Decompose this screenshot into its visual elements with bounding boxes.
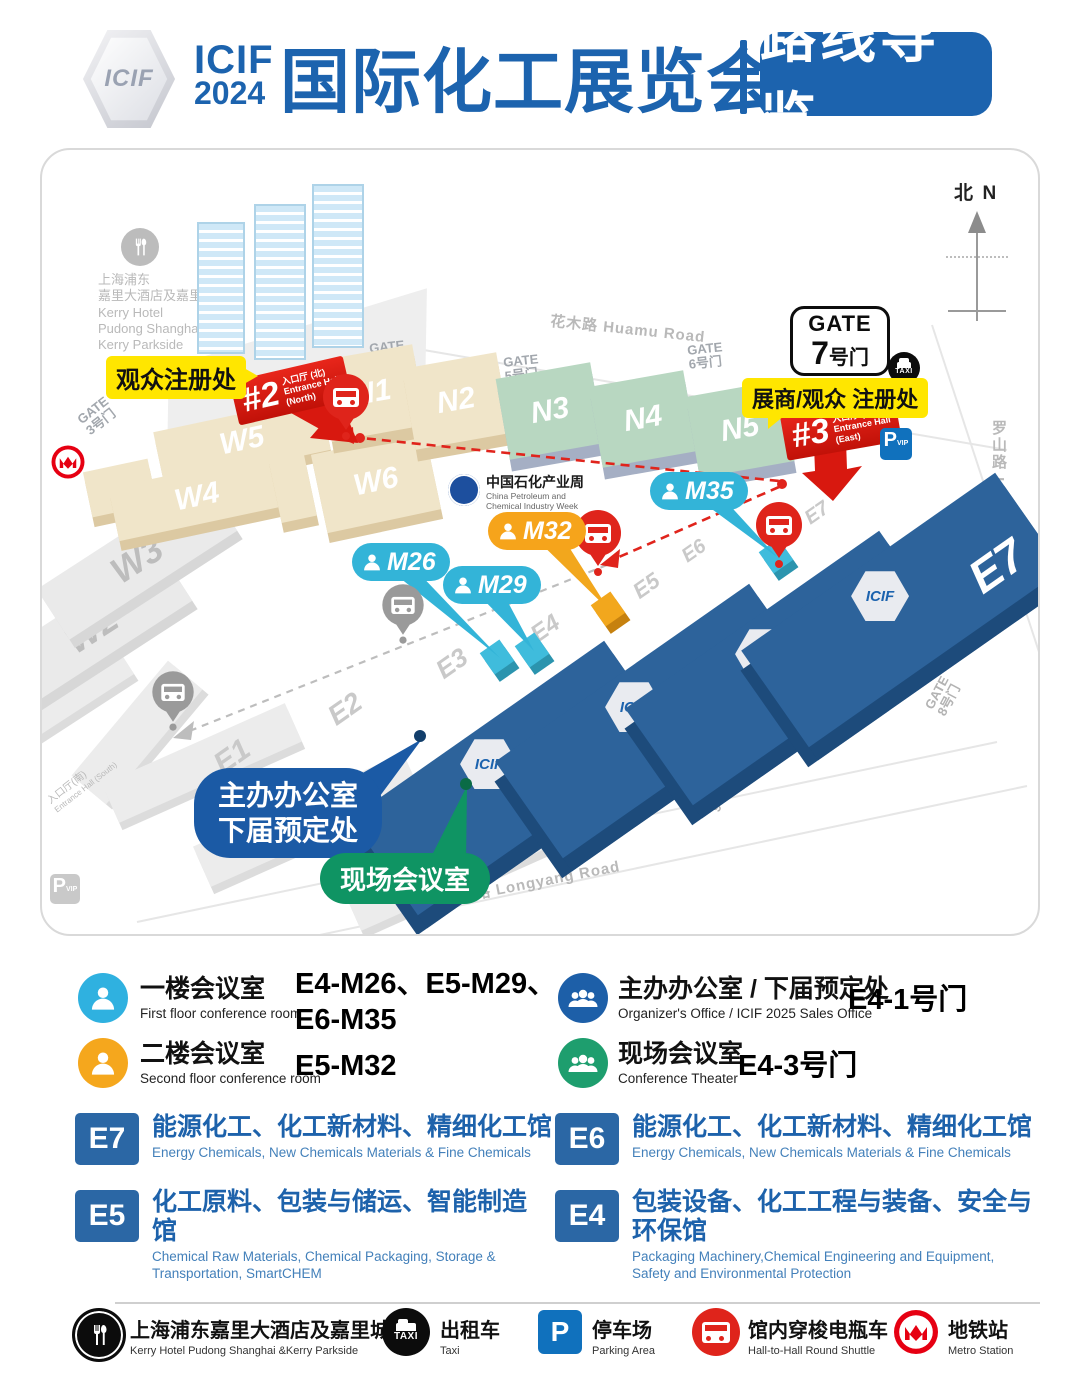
shuttle-stop-icon [756, 502, 802, 568]
legend-first-floor: 一楼会议室 First floor conference room [140, 976, 301, 1021]
second-floor-room-icon [78, 1038, 128, 1088]
footer-parking: 停车场 Parking Area [592, 1314, 655, 1357]
hall-code-e6: E6 [555, 1113, 619, 1165]
hall-info-e5: 化工原料、包装与储运、智能制造馆 Chemical Raw Materials,… [152, 1188, 532, 1283]
restaurant-icon [121, 228, 159, 266]
shuttle-stop-icon-gray [152, 671, 193, 730]
person-icon [498, 521, 518, 541]
conference-theater-icon [558, 1038, 608, 1088]
hall-code-e7: E7 [75, 1113, 139, 1165]
parking-vip-icon-gray: PVIP [50, 874, 80, 904]
page-title: 国际化工展览会 [280, 26, 777, 127]
legend-conference: 现场会议室 Conference Theater [618, 1041, 743, 1086]
first-floor-room-icon [78, 973, 128, 1023]
route-guide-badge: 路线导览 [760, 32, 992, 116]
hall-info-e7: 能源化工、化工新材料、精细化工馆 Energy Chemicals, New C… [152, 1113, 552, 1161]
marker-m32: M32 [488, 512, 586, 550]
person-icon [362, 552, 382, 572]
footer-shuttle: 馆内穿梭电瓶车 Hall-to-Hall Round Shuttle [748, 1314, 888, 1357]
exhibitor-registration-callout: 展商/观众 注册处 [742, 378, 928, 418]
marker-m35: M35 [650, 472, 748, 510]
organizer-office-icon [558, 973, 608, 1023]
page: { "colors":{"brand_blue":"#1c63ae","hall… [0, 0, 1080, 1396]
icif-logo-text: ICIF [90, 36, 168, 122]
person-icon [660, 481, 680, 501]
legend-conference-value: E4-3号门 [738, 1048, 857, 1084]
hall-code-e5: E5 [75, 1190, 139, 1242]
metro-icon [892, 1308, 940, 1356]
marker-m29: M29 [443, 566, 541, 604]
icif-hexagon-logo: ICIF [82, 28, 176, 130]
hall-info-e6: 能源化工、化工新材料、精细化工馆 Energy Chemicals, New C… [632, 1113, 1032, 1161]
brand-icif: ICIF [194, 42, 274, 79]
shuttle-stop-icon-gray [382, 584, 423, 643]
shuttle-stop-icon [323, 374, 369, 440]
venue-map: 上海浦东 嘉里大酒店及嘉里城 Kerry Hotel Pudong Shangh… [40, 148, 1040, 936]
metro-icon [50, 444, 86, 480]
footer-kerry: 上海浦东嘉里大酒店及嘉里城 Kerry Hotel Pudong Shangha… [130, 1314, 390, 1357]
hall-info-e4: 包装设备、化工工程与装备、安全与环保馆 Packaging Machinery,… [632, 1188, 1032, 1283]
organizer-office-bubble: 主办办公室 下届预定处 [194, 768, 382, 858]
legend-second-floor-value: E5-M32 [295, 1048, 397, 1084]
restaurant-icon [72, 1308, 126, 1362]
title-divider [740, 40, 747, 114]
taxi-icon: TAXI [382, 1308, 430, 1356]
brand-year: 2024 [194, 79, 274, 108]
legend-organizer-value: E4-1号门 [848, 982, 967, 1018]
visitor-registration-callout: 观众注册处 [106, 356, 246, 399]
shuttle-icon [692, 1308, 740, 1356]
parking-vip-icon: PVIP [880, 428, 912, 460]
legend-second-floor: 二楼会议室 Second floor conference room [140, 1041, 321, 1086]
footer-taxi: 出租车 Taxi [440, 1314, 500, 1357]
person-icon [453, 575, 473, 595]
footer-metro: 地铁站 Metro Station [948, 1314, 1013, 1357]
parking-icon: P [538, 1310, 582, 1354]
legend-first-floor-value: E4-M26、E5-M29、 E6-M35 [295, 966, 556, 1039]
brand-block: ICIF 2024 [194, 42, 274, 108]
gate-7-box: GATE 7号门 [790, 306, 890, 376]
footer-divider [115, 1302, 1040, 1304]
hall-code-e4: E4 [555, 1190, 619, 1242]
marker-m26: M26 [352, 543, 450, 581]
conference-theater-bubble: 现场会议室 [320, 853, 490, 904]
